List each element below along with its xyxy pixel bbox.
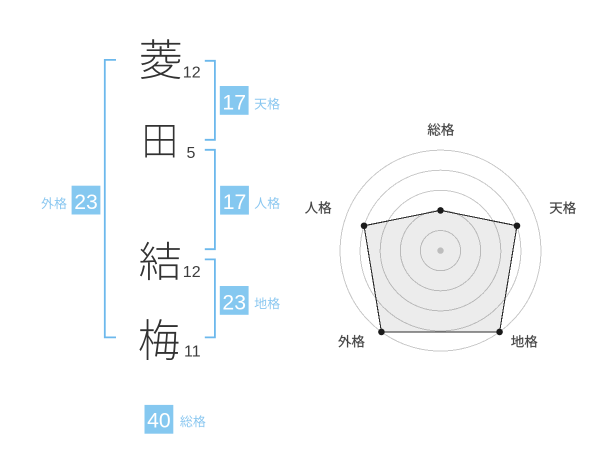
svg-text:12: 12 — [183, 65, 201, 82]
svg-text:23: 23 — [222, 291, 246, 314]
svg-text:23: 23 — [74, 191, 98, 214]
svg-text:11: 11 — [184, 344, 201, 361]
svg-text:12: 12 — [183, 264, 201, 281]
svg-text:17: 17 — [223, 191, 247, 214]
svg-text:5: 5 — [186, 145, 195, 162]
svg-text:17: 17 — [222, 91, 246, 114]
svg-text:40: 40 — [147, 409, 171, 432]
